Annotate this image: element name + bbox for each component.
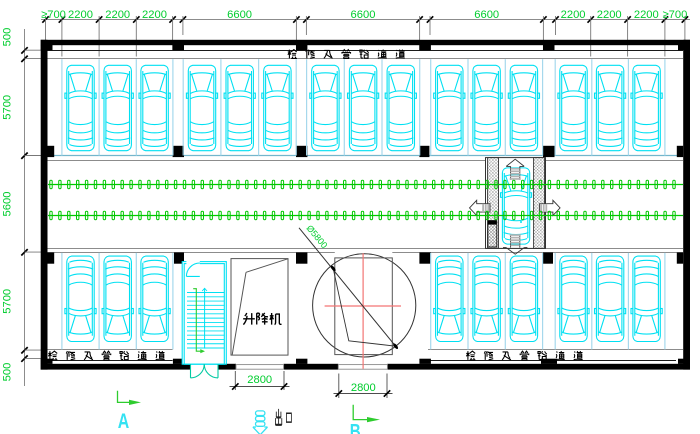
- svg-text:2200: 2200: [597, 9, 622, 21]
- svg-text:5600: 5600: [2, 192, 14, 217]
- svg-text:6600: 6600: [351, 9, 376, 21]
- svg-text:2200: 2200: [142, 9, 167, 21]
- svg-text:2800: 2800: [247, 374, 272, 386]
- svg-text:2200: 2200: [68, 9, 93, 21]
- svg-text:2200: 2200: [105, 9, 130, 21]
- svg-text:2200: 2200: [634, 9, 659, 21]
- svg-text:≥700: ≥700: [662, 9, 687, 21]
- svg-text:6600: 6600: [474, 9, 499, 21]
- svg-text:2800: 2800: [351, 382, 376, 394]
- svg-text:2200: 2200: [561, 9, 586, 21]
- svg-text:5700: 5700: [2, 95, 14, 120]
- svg-text:5700: 5700: [2, 289, 14, 314]
- svg-text:≥700: ≥700: [41, 9, 66, 21]
- svg-text:500: 500: [2, 363, 14, 382]
- svg-text:6600: 6600: [227, 9, 252, 21]
- svg-text:B: B: [350, 421, 361, 434]
- svg-text:A: A: [118, 410, 130, 433]
- svg-text:500: 500: [2, 28, 14, 47]
